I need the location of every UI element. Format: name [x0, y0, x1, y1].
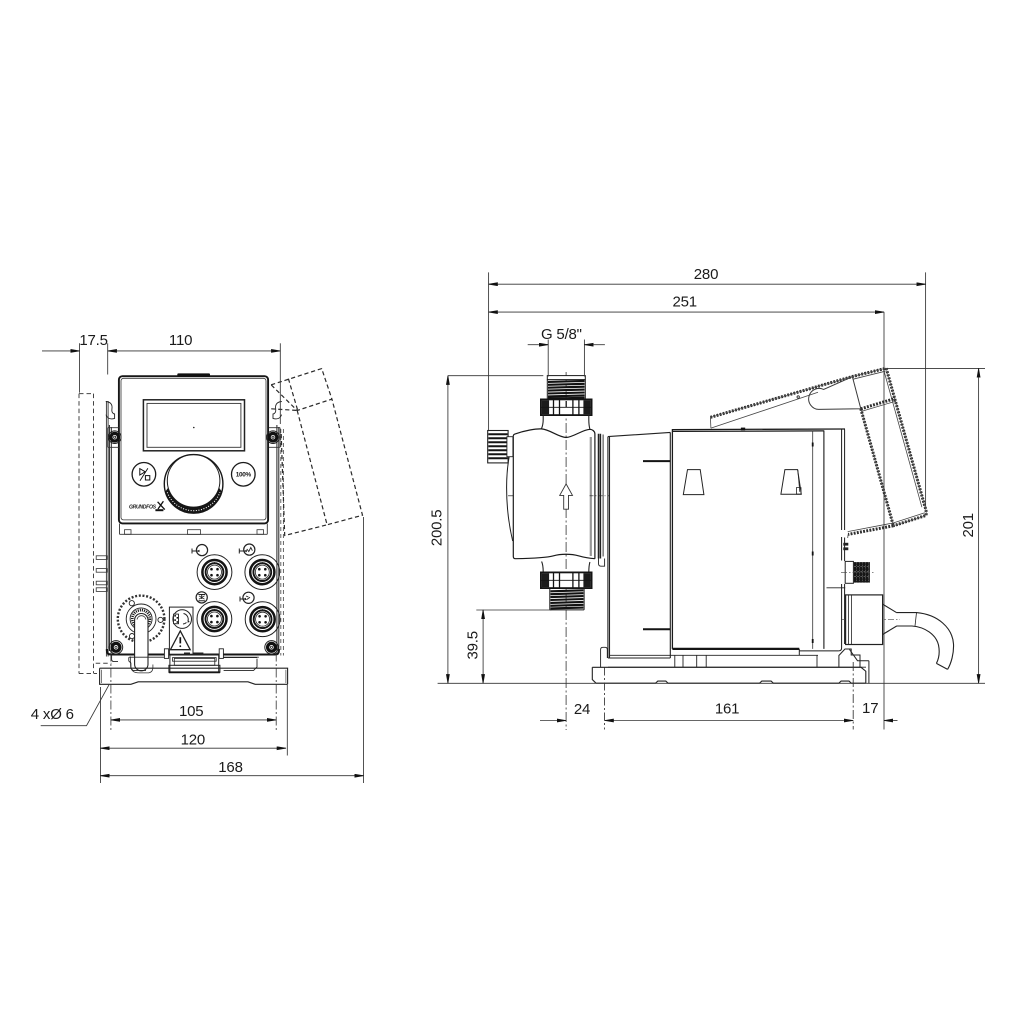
svg-text:39.5: 39.5: [464, 631, 481, 659]
svg-text:4 xØ 6: 4 xØ 6: [31, 706, 74, 723]
svg-text:251: 251: [672, 293, 696, 310]
svg-text:201: 201: [960, 513, 977, 537]
svg-text:100%: 100%: [236, 472, 252, 479]
svg-text:105: 105: [179, 703, 203, 720]
svg-text:200.5: 200.5: [429, 510, 446, 547]
svg-text:24: 24: [574, 701, 590, 718]
svg-text:168: 168: [218, 759, 242, 776]
svg-text:120: 120: [181, 731, 205, 748]
svg-text:110: 110: [169, 332, 192, 349]
svg-text:17: 17: [862, 700, 878, 717]
svg-text:17.5: 17.5: [79, 332, 107, 349]
svg-text:280: 280: [694, 266, 718, 283]
svg-text:161: 161: [715, 701, 739, 718]
svg-text:G 5/8": G 5/8": [541, 326, 582, 343]
svg-text:GRUNDFOS: GRUNDFOS: [129, 504, 157, 510]
